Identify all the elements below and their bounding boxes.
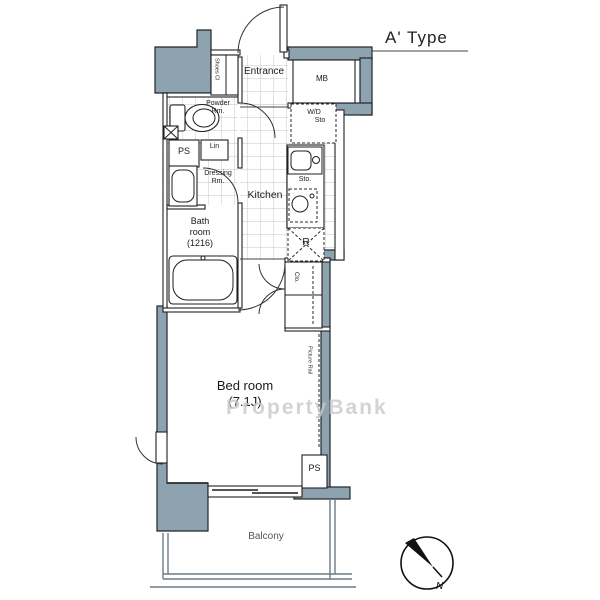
- closet-box: [285, 262, 322, 328]
- label-washer-dryer: W/D Sto: [294, 109, 334, 126]
- label-pipe-space-upper: PS: [169, 146, 199, 157]
- kitchen-counter: [287, 145, 324, 228]
- compass-icon: N: [401, 537, 453, 592]
- closet-door-arc-bottom: [259, 289, 285, 314]
- label-entrance: Entrance: [238, 66, 290, 78]
- label-linen: Lin: [201, 143, 228, 151]
- label-kitchen: Kitchen: [240, 189, 290, 202]
- floor-plan-drawing: N: [0, 0, 600, 600]
- closet-door-arc-top: [259, 264, 285, 289]
- label-powder-room: Powder Rm.: [196, 100, 240, 117]
- bathtub-icon: [169, 256, 237, 304]
- entrance-door: [238, 5, 287, 53]
- sliding-window: [208, 486, 302, 497]
- label-meter-box: MB: [288, 74, 356, 84]
- floor-plan-page: N A' Type Entrance Shoes Cl MB W/D Sto P…: [0, 0, 600, 600]
- stove-icon: [289, 189, 317, 222]
- label-refrigerator: R: [296, 237, 316, 249]
- label-dressing-room: Dressing Rm.: [196, 170, 240, 187]
- label-closet: Clo.: [292, 272, 299, 283]
- label-bathroom: Bath room (1216): [170, 216, 230, 248]
- label-picture-rail: Picture Rail: [306, 346, 313, 374]
- vanity-icon: [169, 166, 197, 206]
- label-balcony: Balcony: [226, 531, 306, 543]
- label-kitchen-storage: Sto.: [290, 176, 320, 184]
- plan-type-title: A' Type: [385, 28, 448, 48]
- watermark: PropertyBank: [226, 396, 388, 420]
- label-pipe-space-lower: PS: [302, 463, 327, 474]
- side-window-door: [136, 432, 167, 464]
- compass-north-label: N: [436, 581, 444, 592]
- label-shoes-closet: Shoes Cl: [213, 58, 220, 80]
